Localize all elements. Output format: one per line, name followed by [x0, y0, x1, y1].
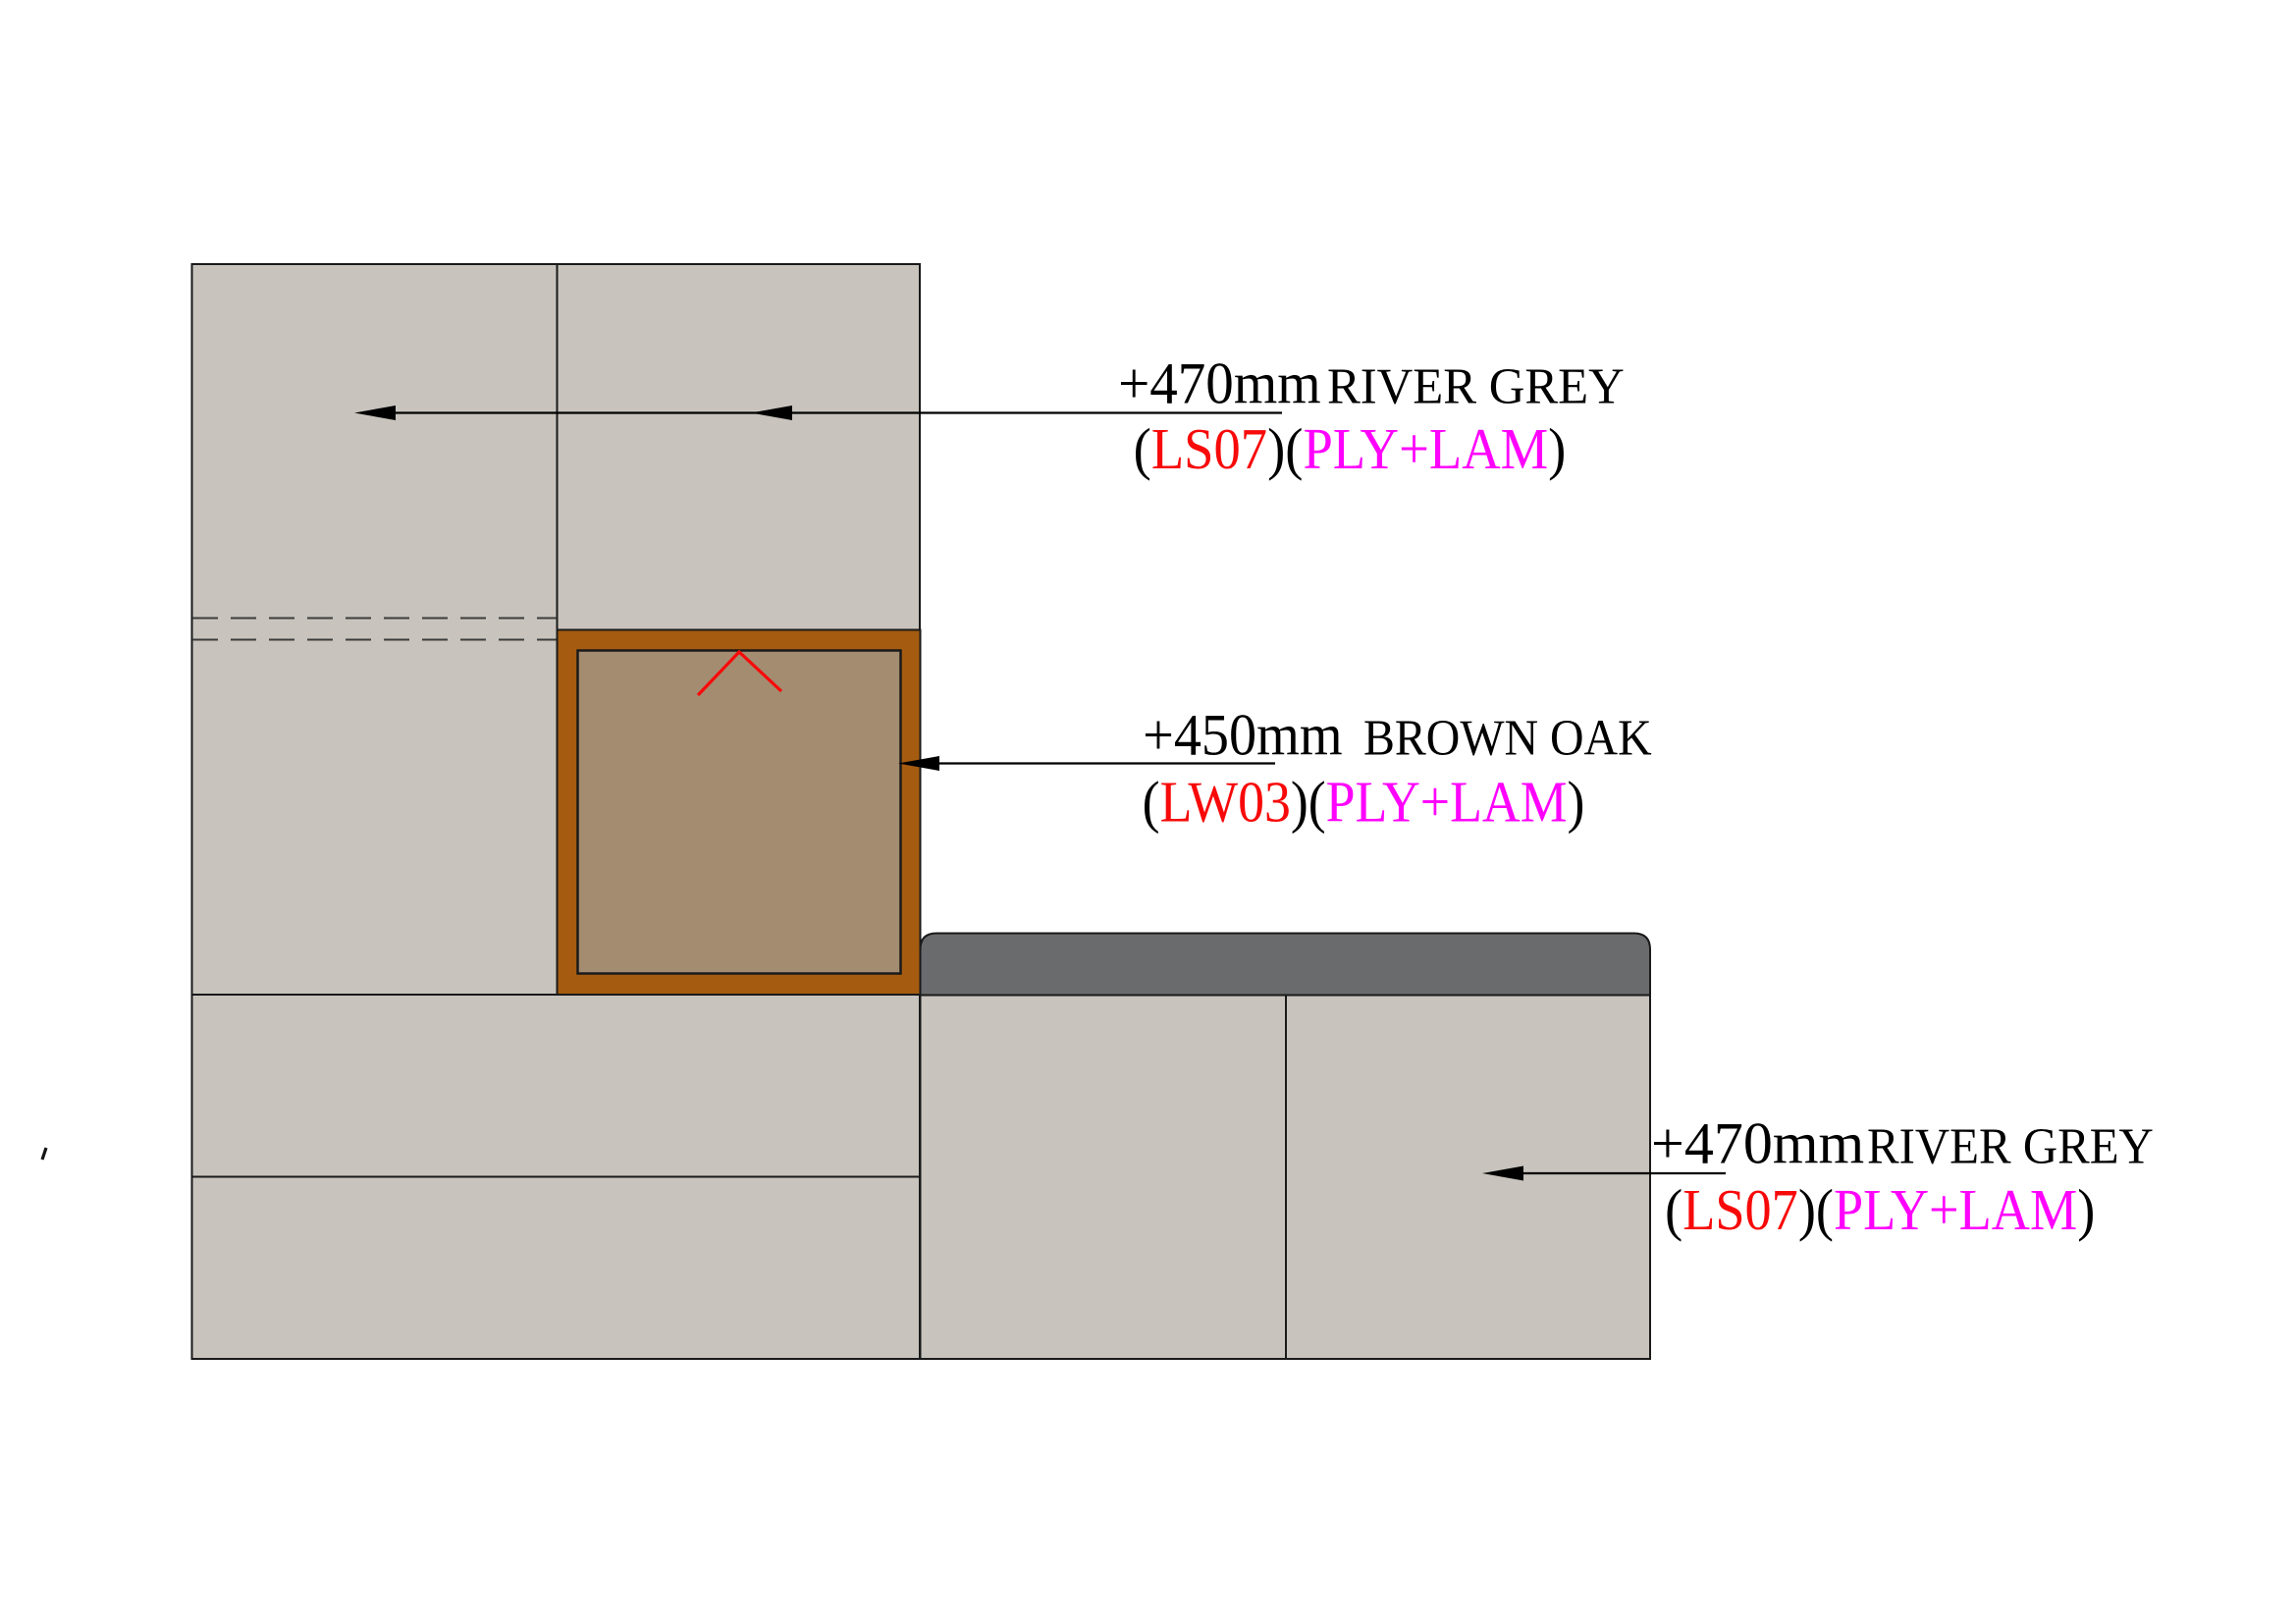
svg-text:(LS07)(PLY+LAM): (LS07)(PLY+LAM) [1134, 417, 1567, 481]
svg-text:(LW03)(PLY+LAM): (LW03)(PLY+LAM) [1143, 771, 1585, 835]
svg-text:RIVER GREY: RIVER GREY [1867, 1117, 2154, 1174]
svg-text:BROWN OAK: BROWN OAK [1363, 709, 1652, 766]
svg-text:+470mm: +470mm [1651, 1111, 1864, 1176]
svg-text:+470mm: +470mm [1118, 351, 1320, 416]
svg-text:(LS07)(PLY+LAM): (LS07)(PLY+LAM) [1665, 1178, 2095, 1243]
svg-text:RIVER GREY: RIVER GREY [1327, 358, 1625, 415]
svg-text:+450mm: +450mm [1143, 702, 1342, 768]
